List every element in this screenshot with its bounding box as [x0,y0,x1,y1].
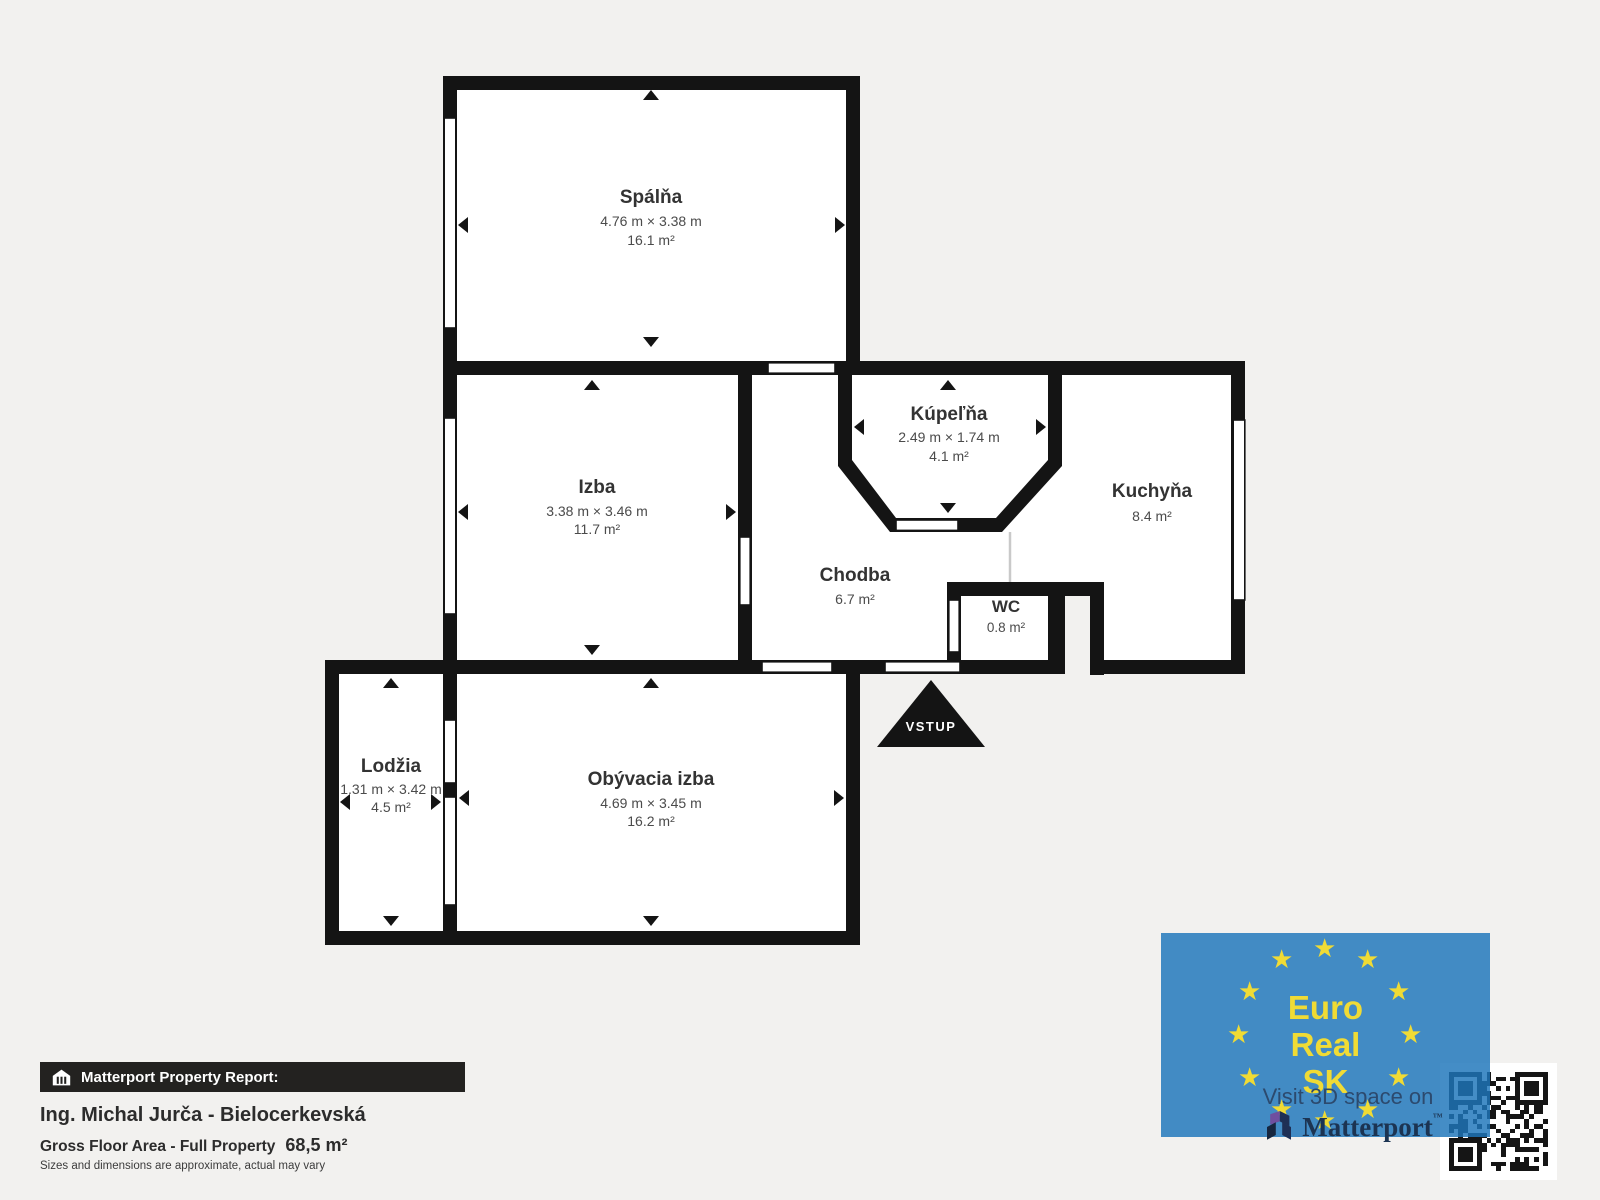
room-dims: 4.76 m × 3.38 m [600,213,702,229]
room-dims: 4.69 m × 3.45 m [600,795,702,811]
door [762,662,832,672]
room-dims: 2.49 m × 1.74 m [898,429,1000,445]
brand-line: Real [1161,1026,1490,1063]
matterport-wordmark: Matterport™ [1302,1112,1442,1143]
room-name: Chodba [820,565,891,586]
room-area: 0.8 m² [987,620,1026,635]
room-area: 16.1 m² [627,232,675,248]
trademark-symbol: ™ [1433,1112,1443,1123]
door [896,520,958,530]
room-area: 6.7 m² [835,591,875,607]
window [444,797,456,905]
eu-star-icon: ★ [1356,946,1379,972]
brand-line: Euro [1161,989,1490,1026]
matterport-brand-row[interactable]: Matterport™ [1186,1109,1520,1145]
gross-floor-area: Gross Floor Area - Full Property 68,5 m² [40,1135,347,1156]
gfa-value: 68,5 m² [285,1135,347,1156]
room-name: Kúpeľňa [911,404,988,425]
window [1233,420,1245,600]
matterport-floorplan-page: VSTUP Spálňa 4.76 m × 3.38 m 16.1 m² Izb… [0,0,1600,1200]
door [949,600,959,652]
disclaimer: Sizes and dimensions are approximate, ac… [40,1160,325,1172]
window [444,720,456,783]
entrance-marker: VSTUP [877,680,985,747]
visit-3d-space-link[interactable]: Visit 3D space on [1181,1084,1515,1110]
matterport-house-icon [52,1068,71,1087]
room-area: 8.4 m² [1132,508,1172,524]
room-name: Kuchyňa [1112,481,1193,502]
door [740,537,750,605]
property-name: Ing. Michal Jurča - Bielocerkevská [40,1104,366,1127]
room-area: 16.2 m² [627,813,675,829]
report-bar-title: Matterport Property Report: [81,1069,279,1086]
room-dims: 3.38 m × 3.46 m [546,503,648,519]
matterport-logo-icon [1263,1109,1295,1145]
room-name: Spálňa [620,187,683,208]
room-name: Lodžia [361,756,422,777]
room-name: WC [992,597,1020,616]
entrance-triangle-icon [877,680,985,747]
agency-logo: ★ ★ ★ ★ ★ ★ ★ ★ ★ ★ ★ ★ Euro Real SK Vis… [1161,933,1490,1137]
eu-star-icon: ★ [1270,946,1293,972]
room-area: 4.5 m² [371,799,411,815]
room-name: Izba [579,477,616,498]
window [444,418,456,614]
report-title-bar: Matterport Property Report: [40,1062,465,1092]
entrance-door [885,662,960,672]
room-dims: 1.31 m × 3.42 m [340,781,442,797]
room-name: Obývacia izba [588,769,715,790]
eu-star-icon: ★ [1313,935,1336,961]
door [768,363,835,373]
room-area: 11.7 m² [574,521,621,537]
window [444,118,456,328]
gfa-label: Gross Floor Area - Full Property [40,1138,275,1156]
room-area: 4.1 m² [929,448,969,464]
kitchen-passage-gap [1065,596,1090,675]
entrance-label: VSTUP [906,719,957,734]
